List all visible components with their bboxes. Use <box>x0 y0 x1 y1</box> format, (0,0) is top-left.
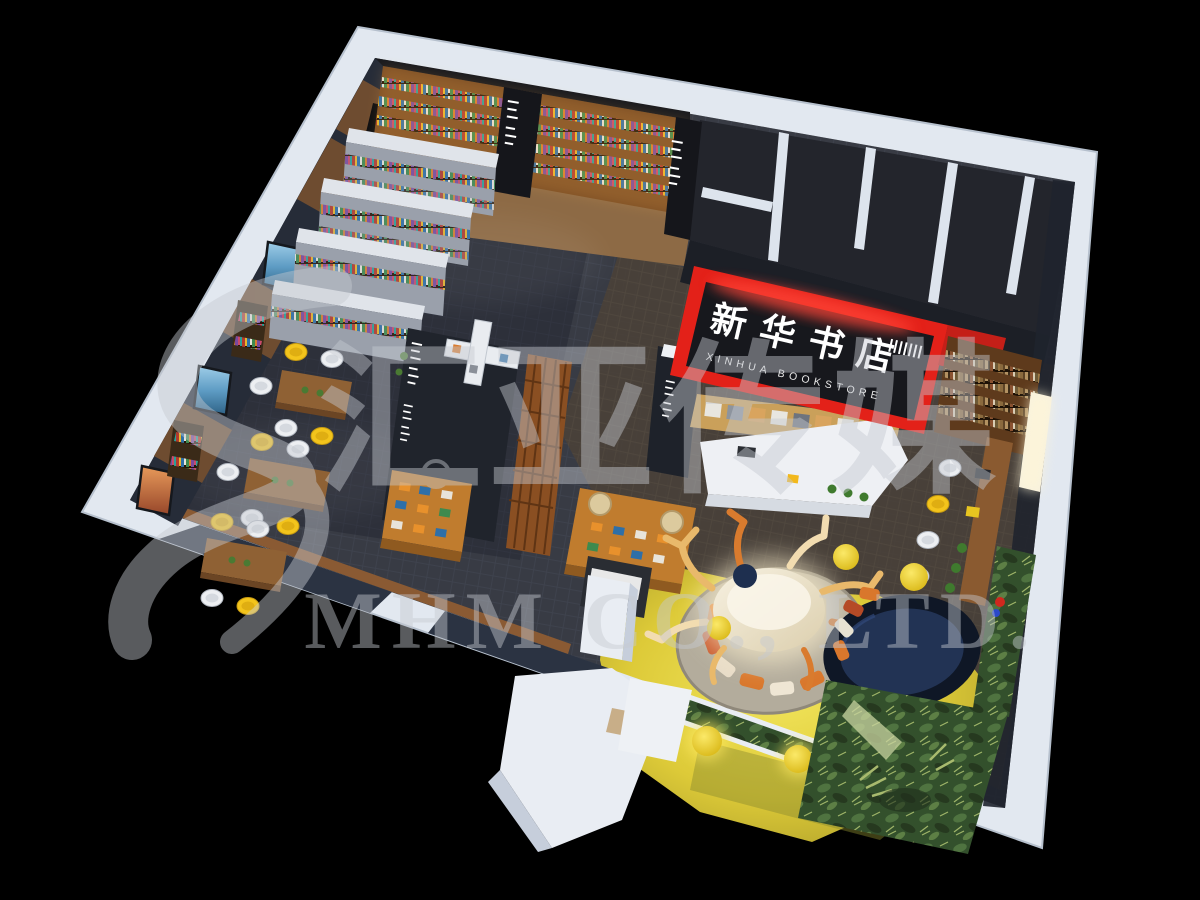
render-canvas: 新华书店 XINHUA BOOKSTORE <box>0 0 1200 900</box>
plant <box>229 557 236 564</box>
plant <box>951 563 961 573</box>
plant <box>244 560 251 567</box>
yellow-ball-seat <box>833 544 859 570</box>
chair <box>285 344 307 361</box>
yellow-ball-lamp <box>692 726 722 756</box>
chair <box>217 464 239 481</box>
jungle-shadow <box>879 788 931 812</box>
chair <box>917 532 939 549</box>
bookstore-3d-render: 新华书店 XINHUA BOOKSTORE <box>0 0 1200 900</box>
watermark-company-en: MHM CO., LTD. <box>304 575 1039 666</box>
chair <box>275 420 297 437</box>
cone-lamp <box>661 511 683 533</box>
watermark-company-zh: 汇亚传媒 <box>318 331 1002 514</box>
plant <box>957 543 967 553</box>
yellow-ball-lamp <box>784 745 812 773</box>
plant <box>302 387 309 394</box>
chair <box>201 590 223 607</box>
chair <box>250 378 272 395</box>
